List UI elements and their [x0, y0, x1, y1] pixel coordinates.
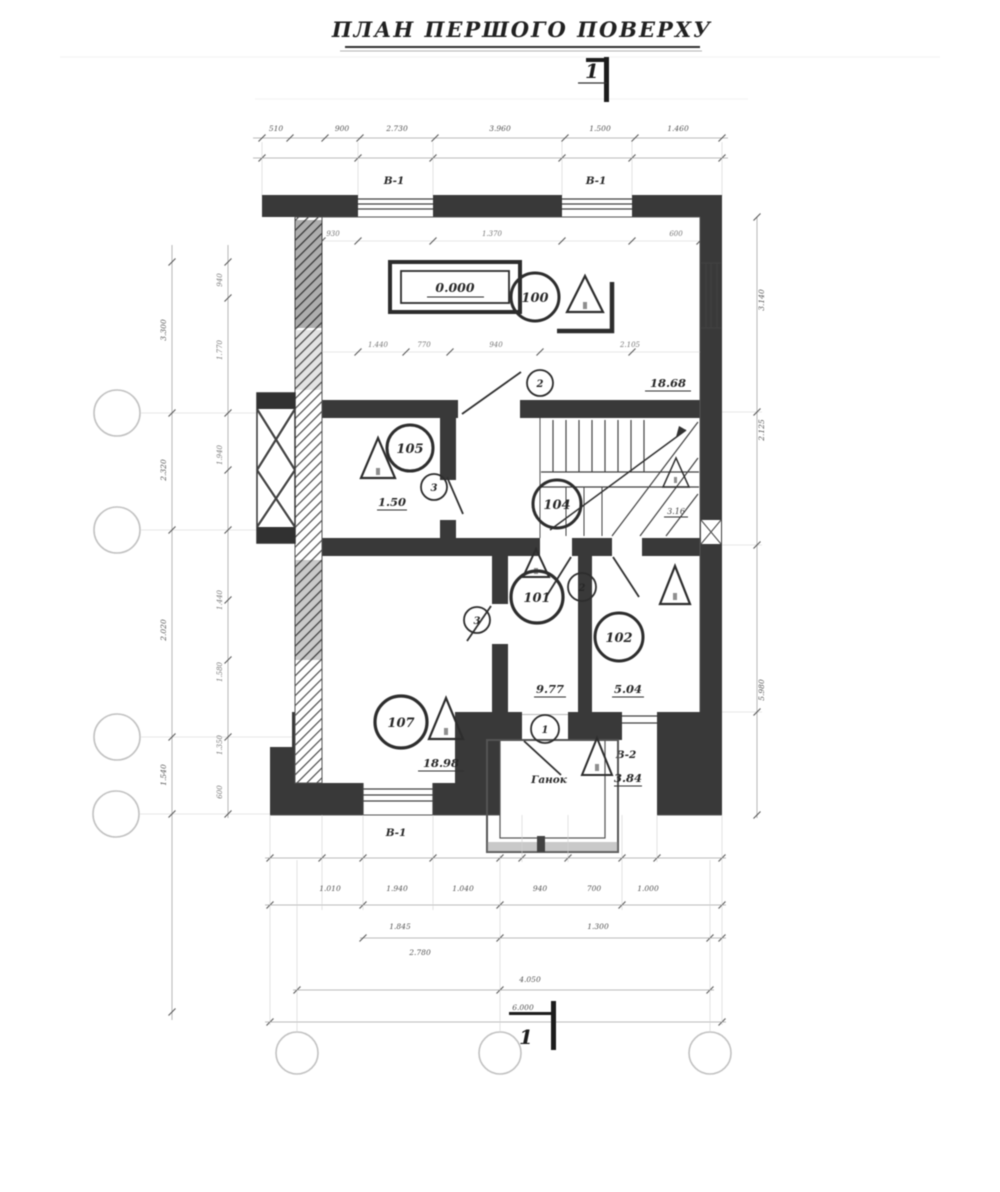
floor-plan-drawing: ПЛАН ПЕРШОГО ПОВЕРХУ 1 510 900 2.730 3.9… — [0, 0, 1000, 1192]
porch: Ганок 3.84 — [487, 738, 642, 852]
dim-bottom3-1: 2.780 — [408, 948, 431, 957]
dim-inner-1: 930 — [326, 230, 340, 238]
section-number-top: 1 — [585, 59, 599, 83]
room-101: 101 9.77 — [511, 549, 566, 697]
dim-left-inner-5: 1.580 — [216, 661, 224, 682]
door-number-top: 2 — [536, 379, 544, 390]
porch-area: 3.84 — [614, 771, 642, 785]
room-101-number: 101 — [523, 591, 550, 606]
section-mark-top: 1 — [578, 57, 609, 102]
dim-room100-4: 2.105 — [619, 341, 641, 349]
section-number-bottom: 1 — [519, 1025, 533, 1049]
dim-bottom5-1: 6.000 — [512, 1003, 534, 1012]
door-number-porch: 1 — [542, 725, 549, 736]
dim-bottom4-1: 4.050 — [518, 975, 541, 984]
room-101-area: 9.77 — [536, 682, 564, 696]
room-105-number: 105 — [396, 442, 423, 457]
dim-left-inner-4: 1.440 — [216, 589, 224, 610]
dim-top-6: 1.460 — [667, 124, 689, 133]
room-107-number: 107 — [387, 716, 414, 731]
dim-right-1: 3.140 — [757, 289, 766, 311]
dim-left-outer-4: 1.540 — [159, 764, 168, 786]
dim-bottom1-5: 700 — [587, 884, 602, 893]
dim-bottom2-2: 1.300 — [587, 922, 609, 931]
chimney-bay — [257, 393, 295, 543]
left-wall-hatched — [295, 217, 322, 783]
dim-bottom1-6: 1.000 — [637, 884, 659, 893]
dim-room100-1: 1.440 — [368, 341, 389, 349]
dim-right-2: 2.125 — [757, 419, 766, 442]
dim-bottom1-3: 1.040 — [452, 884, 474, 893]
scan-artifacts — [60, 57, 940, 99]
dimensions-right: 3.140 2.125 5.980 — [754, 214, 767, 819]
dim-room100-2: 770 — [417, 341, 431, 349]
dimensions-top: 510 900 2.730 3.960 1.500 1.460 — [253, 124, 728, 196]
dim-bottom1-2: 1.940 — [386, 884, 408, 893]
room-102-number: 102 — [605, 631, 632, 646]
walls — [262, 195, 722, 815]
dimensions-left: 3.300 2.320 2.020 1.540 940 1.770 1.940 … — [159, 245, 232, 1020]
dim-top-2: 900 — [335, 124, 350, 133]
dim-top-1: 510 — [269, 124, 284, 133]
elevation-marker: 0.000 — [390, 262, 520, 312]
dim-left-outer-1: 3.300 — [159, 319, 168, 341]
plan-sheet-blur-wrapper: ПЛАН ПЕРШОГО ПОВЕРХУ 1 510 900 2.730 3.9… — [0, 0, 1000, 1192]
stair-mark-value: 3.16 — [667, 507, 685, 516]
room-105: 105 1.50 — [361, 425, 433, 510]
window-label-top-mid: В-1 — [585, 175, 607, 187]
room-105-area: 1.50 — [378, 495, 406, 509]
room-100-area: 18.68 — [650, 376, 686, 390]
porch-label: Ганок — [530, 774, 568, 786]
title-block: ПЛАН ПЕРШОГО ПОВЕРХУ — [331, 17, 712, 51]
dim-left-outer-3: 2.020 — [159, 619, 168, 642]
drawing-title: ПЛАН ПЕРШОГО ПОВЕРХУ — [331, 17, 712, 42]
dim-inner-3: 600 — [669, 230, 683, 238]
room-102-area: 5.04 — [614, 682, 642, 696]
dim-left-inner-2: 1.770 — [216, 339, 224, 360]
room-100: 100 18.68 1.440 770 940 2.105 — [322, 273, 700, 391]
dim-bottom2-1: 1.845 — [389, 922, 411, 931]
dim-left-inner-3: 1.940 — [216, 444, 224, 465]
room-100-number: 100 — [521, 291, 548, 306]
dim-top-5: 1.500 — [589, 124, 611, 133]
dim-left-inner-7: 600 — [216, 785, 224, 799]
room-107: 107 18.98 — [375, 696, 464, 771]
dim-top-4: 3.960 — [489, 124, 511, 133]
room-107-area: 18.98 — [423, 756, 459, 770]
dim-left-inner-6: 1.350 — [216, 734, 224, 755]
elevation-value: 0.000 — [435, 280, 474, 295]
dim-room100-3: 940 — [489, 341, 503, 349]
door-number-107: 3 — [474, 616, 481, 627]
room-102: 102 5.04 — [595, 566, 690, 697]
dim-bottom1-4: 940 — [533, 884, 548, 893]
dim-top-3: 2.730 — [385, 124, 408, 133]
dim-left-outer-2: 2.320 — [159, 459, 168, 482]
scanned-floor-plan-sheet: ПЛАН ПЕРШОГО ПОВЕРХУ 1 510 900 2.730 3.9… — [0, 0, 1000, 1192]
dim-inner-2: 1.370 — [482, 230, 503, 238]
room-104-number: 104 — [543, 498, 570, 513]
dimensions-top-inner: 930 1.370 600 — [319, 230, 704, 245]
stairs: 3.16 — [540, 418, 699, 538]
dim-bottom1-1: 1.010 — [319, 884, 341, 893]
door-number-105: 3 — [431, 483, 438, 494]
window-label-bottom: В-1 — [385, 827, 407, 839]
dim-right-3: 5.980 — [757, 679, 766, 701]
door-number-hall: 2 — [578, 583, 586, 594]
dim-left-inner-1: 940 — [216, 273, 224, 287]
window-label-top-left: В-1 — [383, 175, 405, 187]
